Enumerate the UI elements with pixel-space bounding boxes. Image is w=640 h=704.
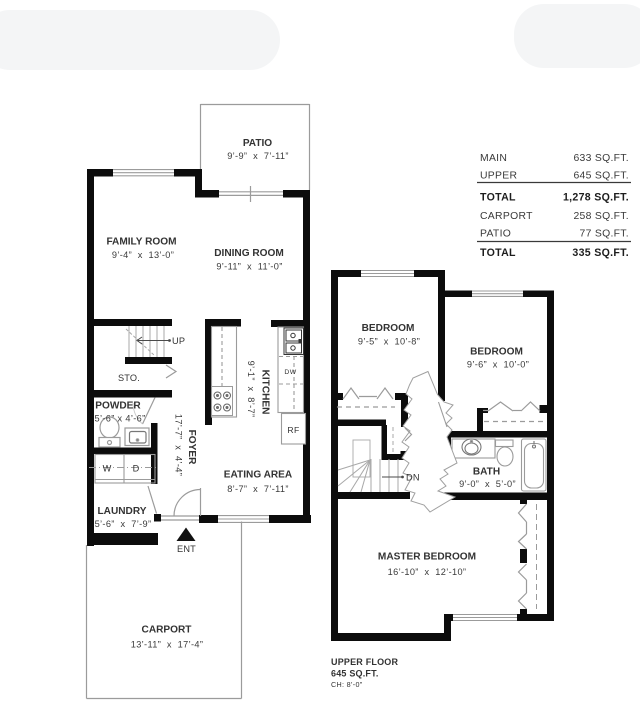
svg-text:9’-9” x 7’-11”: 9’-9” x 7’-11” bbox=[227, 151, 289, 161]
svg-text:CARPORT: CARPORT bbox=[142, 625, 193, 636]
svg-text:CARPORT: CARPORT bbox=[480, 211, 533, 222]
svg-text:PATIO: PATIO bbox=[243, 138, 272, 149]
svg-text:PATIO: PATIO bbox=[480, 229, 511, 240]
svg-text:645 SQ.FT.: 645 SQ.FT. bbox=[573, 171, 629, 182]
svg-text:5’-6” x 4’-6”: 5’-6” x 4’-6” bbox=[94, 414, 145, 424]
svg-text:ENT: ENT bbox=[177, 544, 196, 554]
svg-text:BATH: BATH bbox=[473, 467, 500, 478]
svg-text:1,278 SQ.FT.: 1,278 SQ.FT. bbox=[563, 192, 629, 204]
svg-text:DN: DN bbox=[406, 473, 420, 483]
svg-text:STO.: STO. bbox=[118, 373, 140, 383]
svg-text:FAMILY ROOM: FAMILY ROOM bbox=[106, 237, 176, 248]
svg-text:UPPER: UPPER bbox=[480, 171, 517, 182]
svg-text:TOTAL: TOTAL bbox=[480, 247, 516, 259]
svg-text:9’-11” x 11’-0”: 9’-11” x 11’-0” bbox=[216, 262, 282, 272]
svg-text:UPPER FLOOR: UPPER FLOOR bbox=[331, 657, 399, 667]
svg-text:W: W bbox=[103, 464, 112, 474]
svg-text:RF: RF bbox=[287, 425, 299, 435]
svg-text:633 SQ.FT.: 633 SQ.FT. bbox=[573, 153, 629, 164]
svg-text:9’-6” x 10’-0”: 9’-6” x 10’-0” bbox=[467, 360, 529, 370]
svg-text:EATING AREA: EATING AREA bbox=[224, 470, 293, 481]
svg-text:POWDER: POWDER bbox=[95, 401, 141, 412]
svg-text:KITCHEN: KITCHEN bbox=[260, 370, 271, 415]
svg-text:D: D bbox=[133, 464, 140, 474]
svg-text:9’-1” x 8’-7”: 9’-1” x 8’-7” bbox=[246, 361, 256, 418]
svg-text:LAUNDRY: LAUNDRY bbox=[98, 506, 147, 517]
svg-text:16’-10” x 12’-10”: 16’-10” x 12’-10” bbox=[388, 567, 467, 577]
svg-text:17’-7” x 4’-4”: 17’-7” x 4’-4” bbox=[174, 414, 184, 476]
svg-text:BEDROOM: BEDROOM bbox=[470, 347, 523, 358]
svg-text:MASTER BEDROOM: MASTER BEDROOM bbox=[378, 552, 476, 563]
svg-text:BEDROOM: BEDROOM bbox=[362, 323, 415, 334]
svg-text:CH: 8’-0”: CH: 8’-0” bbox=[331, 680, 363, 689]
svg-text:335 SQ.FT.: 335 SQ.FT. bbox=[572, 247, 629, 259]
svg-text:DINING ROOM: DINING ROOM bbox=[214, 248, 284, 259]
svg-text:5’-6” x 7’-9”: 5’-6” x 7’-9” bbox=[95, 519, 152, 529]
svg-text:DW: DW bbox=[284, 369, 296, 376]
svg-text:TOTAL: TOTAL bbox=[480, 192, 516, 204]
svg-text:77 SQ.FT.: 77 SQ.FT. bbox=[580, 229, 629, 240]
svg-text:MAIN: MAIN bbox=[480, 153, 507, 164]
svg-text:8’-7” x 7’-11”: 8’-7” x 7’-11” bbox=[227, 484, 289, 494]
svg-text:9’-5” x 10’-8”: 9’-5” x 10’-8” bbox=[358, 337, 420, 347]
svg-text:13’-11” x 17’-4”: 13’-11” x 17’-4” bbox=[131, 640, 204, 650]
svg-text:9’-4” x 13’-0”: 9’-4” x 13’-0” bbox=[112, 250, 174, 260]
svg-text:645 SQ.FT.: 645 SQ.FT. bbox=[331, 669, 379, 679]
svg-text:258 SQ.FT.: 258 SQ.FT. bbox=[573, 211, 629, 222]
svg-text:UP: UP bbox=[172, 336, 185, 346]
svg-text:FOYER: FOYER bbox=[186, 430, 197, 465]
svg-text:9’-0” x 5’-0”: 9’-0” x 5’-0” bbox=[459, 479, 516, 489]
